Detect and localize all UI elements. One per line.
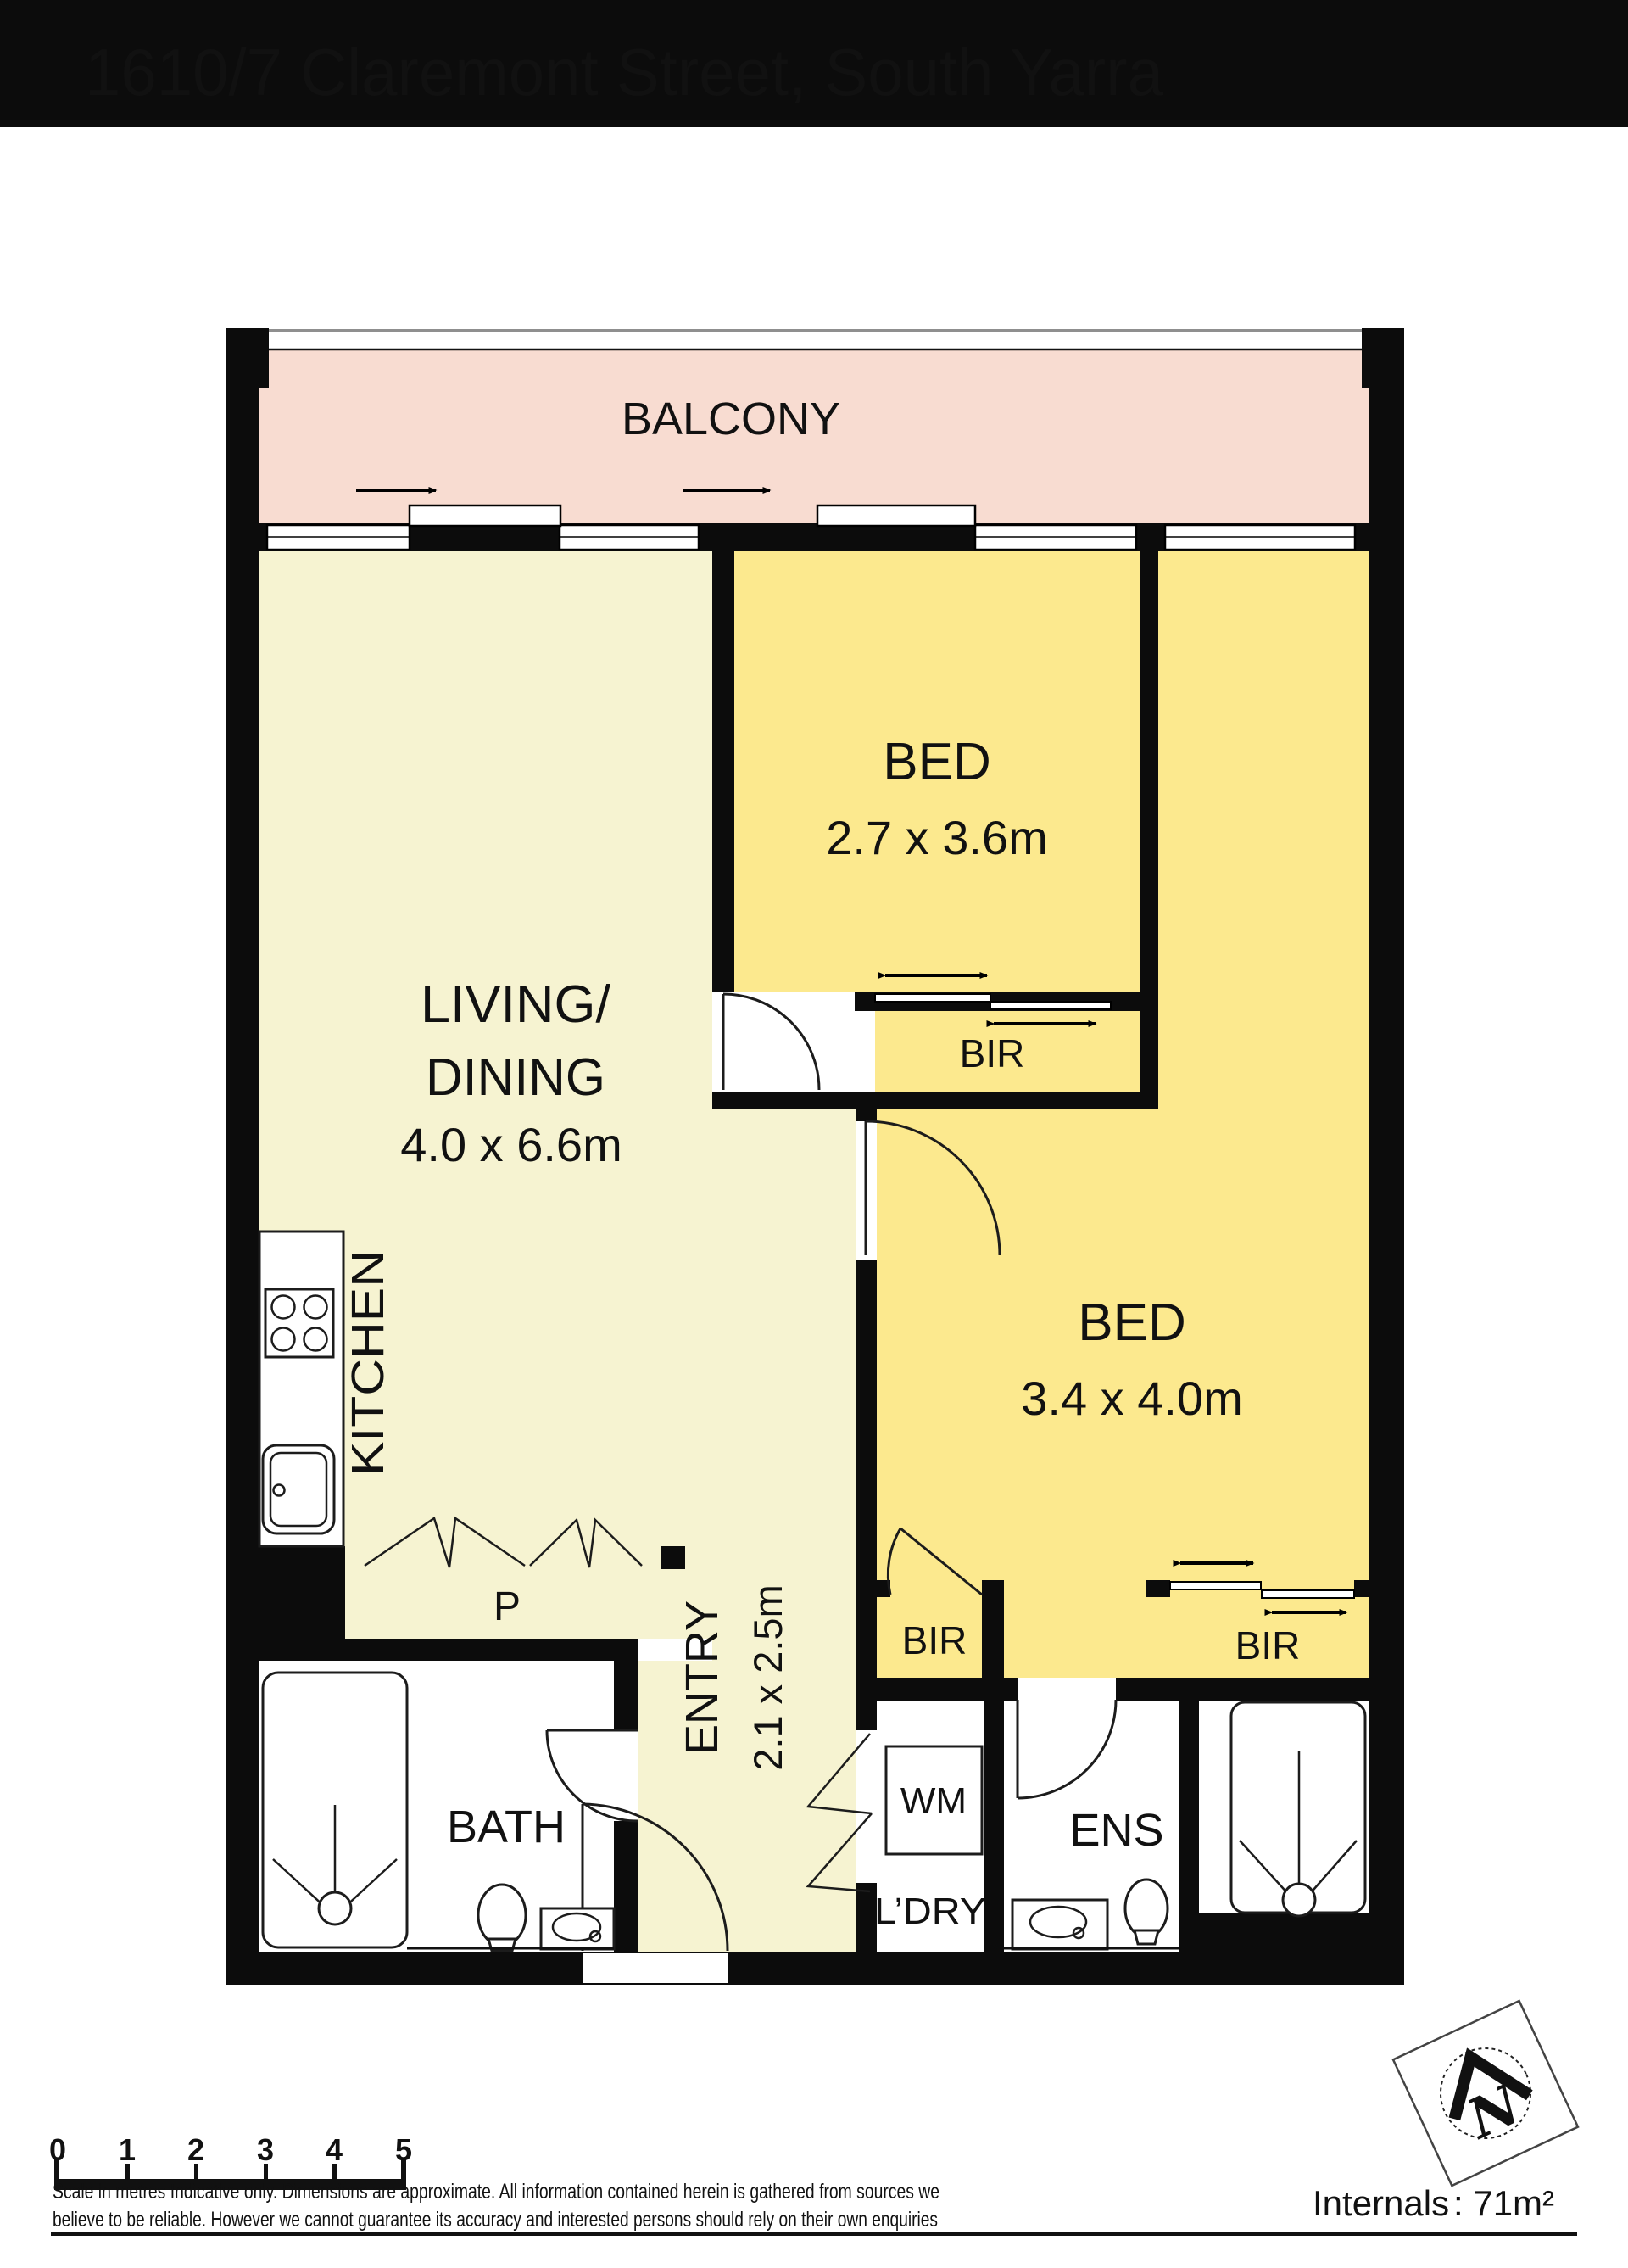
wall-bir3-stub-left [1146, 1580, 1170, 1597]
window-bed2 [1165, 525, 1355, 550]
wall-laundry-ensuite [984, 1701, 1004, 1952]
bir2-label: BIR [902, 1618, 967, 1662]
wall-ensuite-top-left [856, 1678, 1017, 1701]
bed2-label: BED [1078, 1293, 1185, 1352]
sliding-door-panel-bed1 [817, 506, 975, 526]
wall-hall-laundry [856, 1580, 877, 1730]
page-title: 1610/7 Claremont Street, South Yarra [85, 35, 1164, 109]
window-living-right [560, 525, 699, 550]
entry-hall-area [712, 1108, 856, 1661]
bath-shower-icon [263, 1673, 407, 1947]
cooktop-icon [265, 1289, 333, 1357]
scale-tick-2: 2 [187, 2132, 204, 2167]
washing-machine-label: WM [900, 1780, 967, 1822]
kitchen-fixtures [259, 1232, 343, 1546]
wall-bath-right-lower [614, 1821, 638, 1952]
wall-bir3-stub-right [1354, 1580, 1371, 1597]
footer-rule [51, 2232, 1577, 2236]
scale-tick-1: 1 [119, 2132, 136, 2167]
north-compass-icon: N [1393, 2001, 1578, 2186]
title-bar: 1610/7 Claremont Street, South Yarra [0, 0, 1628, 127]
wall-balcony-corner-left [226, 328, 269, 388]
wall-hall-stub [856, 1108, 877, 1121]
wall-outer-bottom [226, 1952, 1404, 1985]
wall-bir2-right [982, 1597, 1004, 1678]
bir3-track-lower [1262, 1590, 1354, 1598]
bir1-label: BIR [960, 1031, 1025, 1075]
disclaimer-line2: believe to be reliable. However we canno… [53, 2208, 938, 2232]
disclaimer: Scale in metres Indicative only. Dimensi… [53, 2180, 939, 2232]
wall-below-shower [1179, 1913, 1370, 1955]
bed2-dims: 3.4 x 4.0m [1021, 1371, 1242, 1425]
wall-bath-right-upper [614, 1661, 638, 1730]
living-label-line2: DINING [426, 1048, 605, 1107]
disclaimer-line1: Scale in metres Indicative only. Dimensi… [53, 2180, 939, 2204]
wall-bath-top [226, 1639, 638, 1661]
pantry-label: P [493, 1584, 521, 1629]
scale-tick-3: 3 [257, 2132, 274, 2167]
internals-value: : 71m² [1453, 2183, 1554, 2223]
bath-vanity-icon [541, 1908, 614, 1949]
bir1-track-upper [875, 994, 990, 1002]
wall-bir2-stub-right [982, 1580, 1004, 1597]
bir3-track-upper [1170, 1582, 1261, 1589]
kitchen-label: KITCHEN [343, 1250, 393, 1476]
bath-label: BATH [447, 1802, 566, 1852]
bir1-track-lower [990, 1002, 1111, 1009]
bed1-label: BED [883, 733, 990, 791]
wall-outer-right [1369, 328, 1404, 1985]
balcony-label: BALCONY [622, 394, 840, 444]
entry-label: ENTRY [677, 1600, 728, 1755]
living-label-line1: LIVING/ [421, 975, 611, 1034]
bed2-upper-area [1158, 547, 1371, 1109]
wall-hall-bed2 [856, 1260, 877, 1580]
wall-ensuite-top-right [1116, 1678, 1370, 1701]
entry-dims: 2.1 x 2.5m [745, 1584, 790, 1770]
internals-label: Internals [1313, 2183, 1449, 2223]
wall-bir1-bottom [712, 1092, 1158, 1109]
floor-plan: BALCONY BED 2.7 x 3.6m BED 3.4 x 4.0m LI… [226, 328, 1404, 1985]
bed1-door [723, 994, 819, 1090]
ensuite-shower-icon [1231, 1702, 1365, 1916]
wall-pantry-stub [661, 1546, 685, 1569]
wall-ensuite-shower [1179, 1701, 1199, 1913]
balcony-railing [259, 331, 1369, 349]
sliding-door-panel-living [410, 506, 560, 526]
ensuite-vanity-icon [1012, 1900, 1107, 1949]
floor-plan-page: 1610/7 Claremont Street, South Yarra [0, 0, 1628, 2268]
wall-bed1-right [1140, 547, 1158, 1109]
wall-bed1-left [712, 547, 734, 992]
window-bed1 [975, 525, 1136, 550]
wall-outer-left [226, 328, 259, 1985]
ensuite-label: ENS [1069, 1805, 1163, 1856]
wall-balcony-corner-right [1362, 328, 1404, 388]
living-dims: 4.0 x 6.6m [400, 1118, 622, 1171]
window-living-left [267, 525, 410, 550]
internals-area: Internals : 71m² [1313, 2183, 1554, 2223]
bed1-dims: 2.7 x 3.6m [826, 811, 1047, 864]
scale-tick-4: 4 [326, 2132, 343, 2167]
bir3-label: BIR [1235, 1623, 1301, 1667]
sink-icon [263, 1445, 334, 1533]
laundry-label: L’DRY [874, 1891, 986, 1932]
